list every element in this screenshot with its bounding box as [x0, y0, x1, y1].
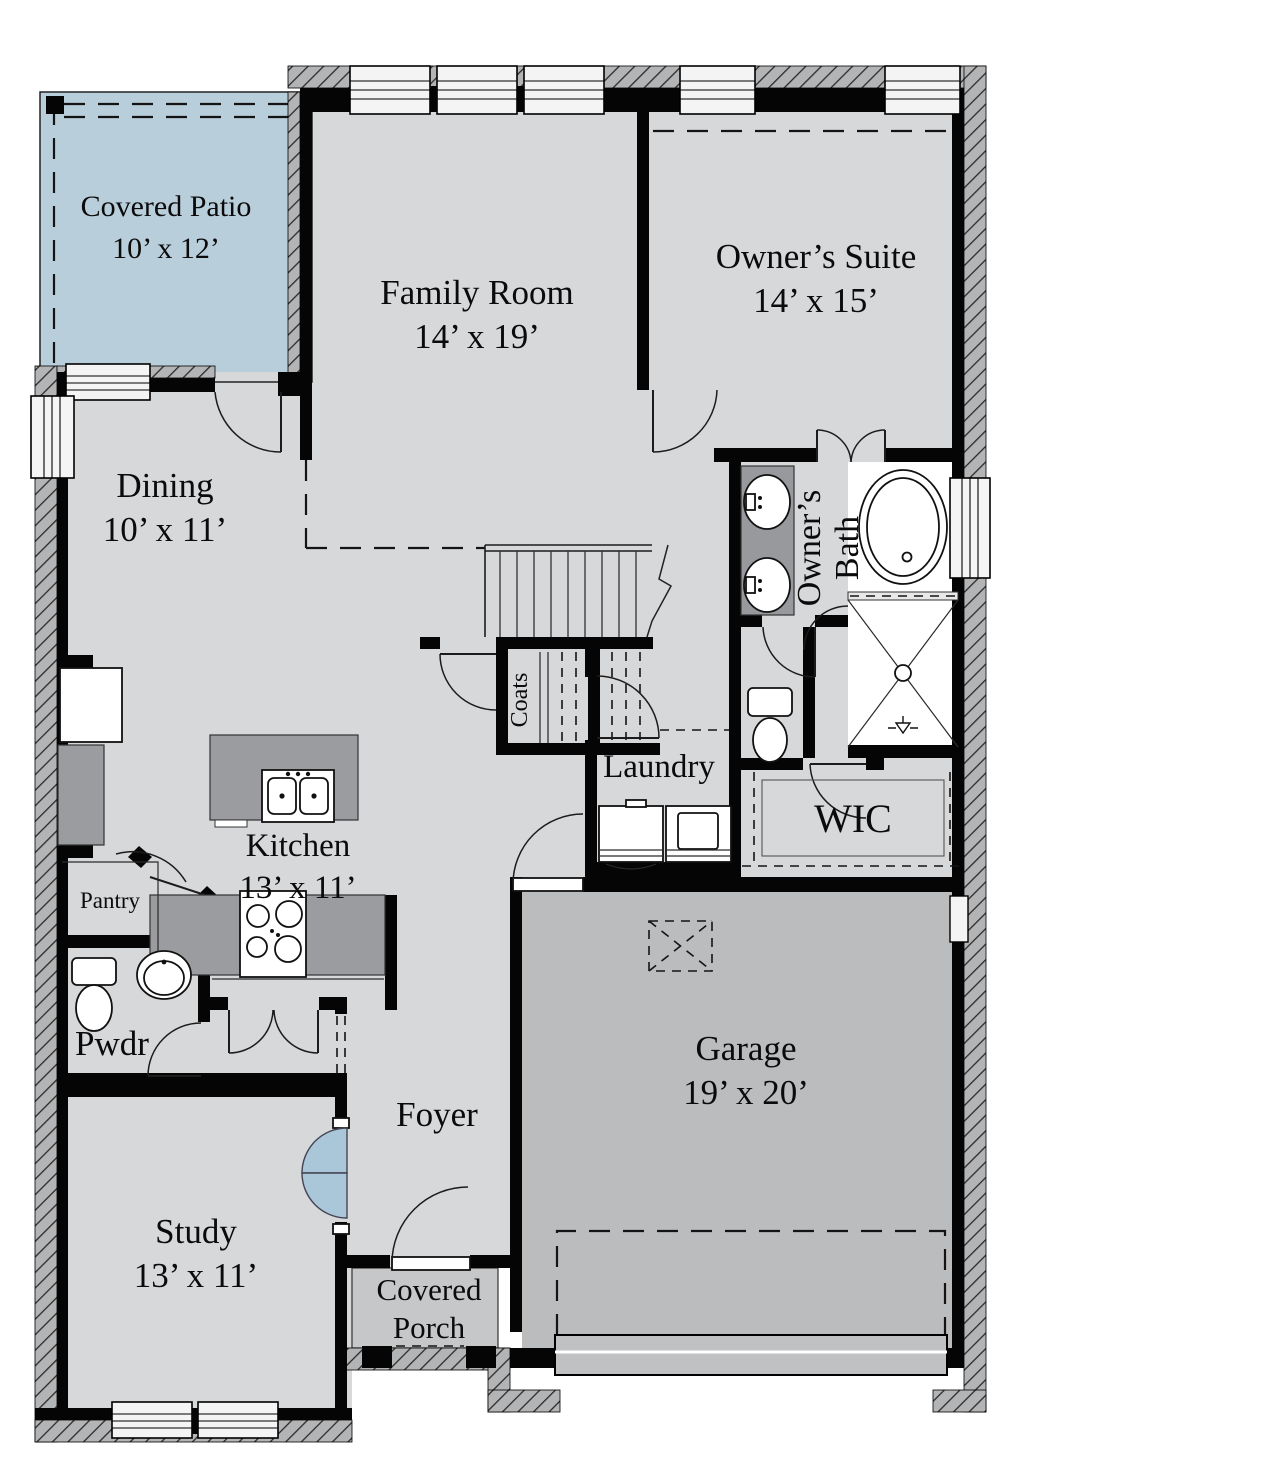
dryer-icon	[666, 806, 731, 862]
label-dining-dims: 10’ x 11’	[103, 510, 227, 549]
tub-window	[950, 478, 990, 578]
floor-plan-drawing: Covered Patio 10’ x 12’ Family Room 14’ …	[0, 0, 1261, 1463]
label-porch-2: Porch	[393, 1310, 466, 1345]
label-study: Study	[155, 1212, 237, 1251]
label-kitchen: Kitchen	[246, 828, 350, 864]
vanity-sink-icon-2	[744, 558, 790, 612]
patio-post	[46, 96, 64, 114]
study-window-2	[198, 1402, 278, 1438]
label-family-room-dims: 14’ x 19’	[414, 317, 540, 356]
garage-door	[555, 1335, 947, 1375]
label-pwdr: Pwdr	[75, 1024, 149, 1063]
floor-plan-page: Covered Patio 10’ x 12’ Family Room 14’ …	[0, 0, 1261, 1463]
label-garage: Garage	[695, 1029, 796, 1068]
label-family-room: Family Room	[380, 273, 574, 312]
label-pantry: Pantry	[80, 888, 141, 913]
label-wic: WIC	[814, 796, 892, 841]
label-kitchen-dims: 13’ x 11’	[239, 870, 356, 906]
washer-icon	[599, 800, 663, 869]
label-study-dims: 13’ x 11’	[134, 1256, 258, 1295]
label-porch-1: Covered	[376, 1272, 482, 1307]
pwdr-toilet-icon	[72, 958, 116, 1031]
label-owners-bath-1: Owner’s	[791, 490, 828, 606]
dining-west-window	[31, 396, 74, 478]
counter-west	[58, 745, 104, 845]
garage-floor	[522, 892, 964, 1368]
label-owners-suite: Owner’s Suite	[716, 237, 917, 276]
kitchen-sink-icon	[262, 770, 334, 822]
vanity-sink-icon	[744, 475, 790, 529]
study-window-1	[112, 1402, 192, 1438]
pwdr-sink-icon	[137, 951, 191, 999]
tub-icon	[859, 470, 947, 584]
family-room-window	[350, 66, 604, 114]
label-dining: Dining	[116, 466, 213, 505]
label-garage-dims: 19’ x 20’	[683, 1073, 809, 1112]
label-owners-bath-2: Bath	[829, 516, 866, 580]
label-coats: Coats	[507, 673, 533, 728]
label-laundry: Laundry	[603, 749, 715, 785]
label-owners-suite-dims: 14’ x 15’	[753, 281, 879, 320]
garage-wall-niche	[950, 896, 968, 942]
owners-suite-window-1	[680, 66, 755, 114]
owners-suite-window-2	[885, 66, 960, 114]
dining-north-window	[66, 364, 150, 400]
label-foyer: Foyer	[396, 1095, 478, 1134]
label-covered-patio: Covered Patio	[81, 190, 252, 223]
fridge-icon	[60, 668, 122, 742]
label-covered-patio-dims: 10’ x 12’	[112, 232, 220, 265]
